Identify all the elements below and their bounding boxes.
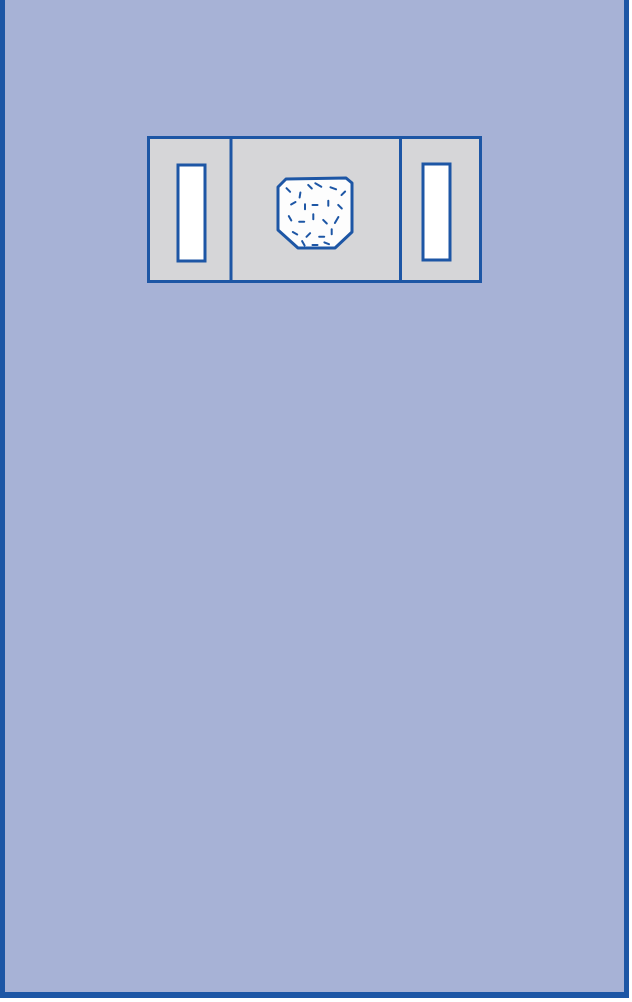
speckle-dash xyxy=(300,193,301,198)
speckled-pouch-shape xyxy=(278,178,352,248)
page-canvas xyxy=(0,0,632,1002)
left-slot xyxy=(178,165,205,261)
right-slot xyxy=(423,164,450,260)
component-figure xyxy=(147,136,482,283)
